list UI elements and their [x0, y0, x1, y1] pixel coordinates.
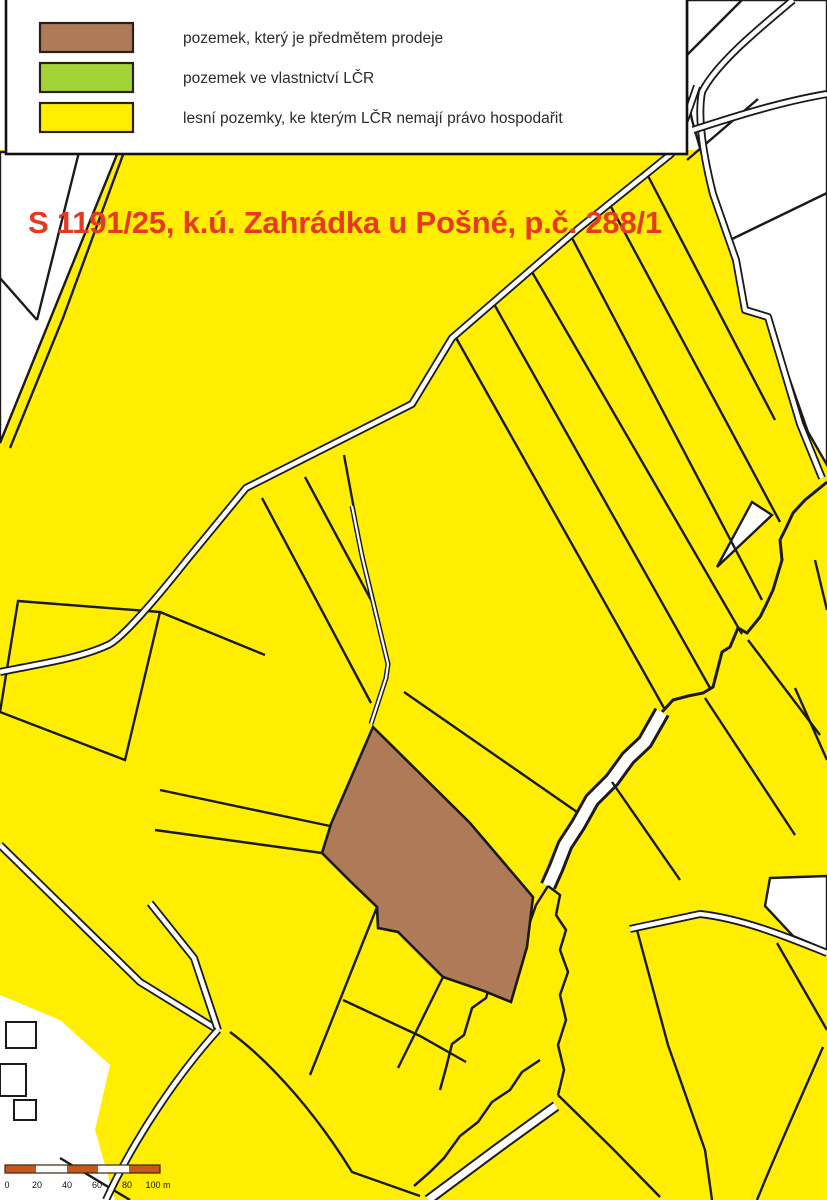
legend-swatch-lcr-owned — [40, 63, 133, 92]
scale-segment-2 — [36, 1165, 67, 1173]
legend-swatch-forest — [40, 103, 133, 132]
legend-label-forest: lesní pozemky, ke kterým LČR nemají práv… — [183, 110, 563, 127]
scale-label-100m: 100 m — [145, 1180, 170, 1190]
scale-label-20: 20 — [32, 1180, 42, 1190]
legend-swatch-sale-parcel — [40, 23, 133, 52]
legend-label-lcr-owned: pozemek ve vlastnictví LČR — [183, 70, 374, 87]
scale-segment-1 — [5, 1165, 36, 1173]
scale-label-60: 60 — [92, 1180, 102, 1190]
scale-label-80: 80 — [122, 1180, 132, 1190]
scale-label-0: 0 — [4, 1180, 9, 1190]
scale-label-40: 40 — [62, 1180, 72, 1190]
map-title: S 1191/25, k.ú. Zahrádka u Pošné, p.č. 2… — [28, 205, 662, 240]
scale-segment-5 — [129, 1165, 160, 1173]
scale-segment-3 — [67, 1165, 98, 1173]
scale-segment-4 — [98, 1165, 129, 1173]
cadastral-map: S 1191/25, k.ú. Zahrádka u Pošné, p.č. 2… — [0, 0, 827, 1200]
cadastral-map-page: S 1191/25, k.ú. Zahrádka u Pošné, p.č. 2… — [0, 0, 827, 1200]
legend-label-sale-parcel: pozemek, který je předmětem prodeje — [183, 30, 443, 47]
legend: pozemek, který je předmětem prodeje poze… — [6, 0, 687, 154]
